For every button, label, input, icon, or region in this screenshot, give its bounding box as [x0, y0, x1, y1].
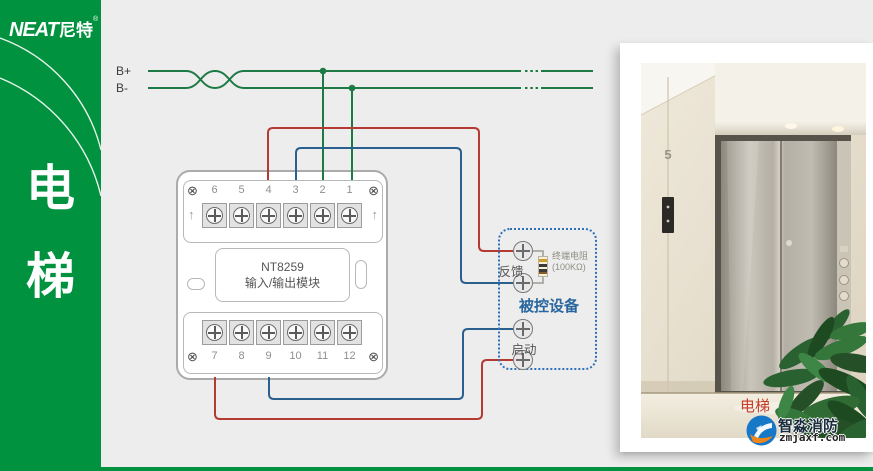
start-label: 启动	[509, 339, 539, 358]
start-terminal-positive	[513, 319, 533, 339]
terminal-number: 2	[310, 184, 335, 196]
terminal-screw	[310, 203, 335, 228]
terminal-screw	[202, 320, 227, 345]
mounting-screw-icon: ⊗	[187, 350, 198, 363]
mounting-screw-icon: ⊗	[368, 184, 379, 197]
terminal-numbers-top: 6 5 4 3 2 1	[202, 184, 362, 196]
terminal-number: 12	[337, 350, 362, 362]
bus-line-bminus	[148, 71, 521, 88]
terminal-numbers-bottom: 7 8 9 10 11 12	[202, 350, 362, 362]
arrow-up-icon: ↑	[188, 208, 195, 221]
terminal-screw	[229, 203, 254, 228]
module-terminal-strip-top: ⊗ 6 5 4 3 2 1 ⊗ ↑ ↑	[183, 180, 383, 243]
terminal-number: 6	[202, 184, 227, 196]
watermark-site: zmjaxf.com	[779, 431, 845, 444]
terminal-resistor-note: 终端电阻 (100KΩ)	[552, 251, 588, 273]
terminal-screw	[283, 320, 308, 345]
controlled-device-title: 被控设备	[505, 295, 593, 316]
terminal-number: 9	[256, 350, 281, 362]
terminal-number: 7	[202, 350, 227, 362]
photo-caption: 电梯	[740, 395, 770, 416]
terminal-number: 4	[256, 184, 281, 196]
module-slot	[355, 260, 367, 289]
terminal-number: 11	[310, 350, 335, 362]
terminal-number: 5	[229, 184, 254, 196]
module-name-plate: NT8259 输入/输出模块	[215, 248, 350, 302]
terminal-screw	[256, 320, 281, 345]
terminal-resistor-value: (100KΩ)	[552, 262, 588, 273]
bus-label-bminus: B-	[116, 81, 128, 95]
bus-label-bplus: B+	[116, 64, 131, 78]
feedback-terminal-positive	[513, 241, 533, 261]
terminal-number: 8	[229, 350, 254, 362]
watermark-logo-icon	[746, 415, 777, 446]
module-terminal-strip-bottom: ⊗ 7 8 9 10 11 12 ⊗	[183, 312, 383, 374]
feedback-label: 反馈	[496, 261, 526, 280]
terminal-number: 10	[283, 350, 308, 362]
terminal-screws-bottom	[202, 320, 362, 345]
terminal-screw	[256, 203, 281, 228]
mounting-screw-icon: ⊗	[368, 350, 379, 363]
page: 5	[0, 0, 873, 471]
terminal-screw	[310, 320, 335, 345]
terminal-screw	[202, 203, 227, 228]
terminal-screw	[229, 320, 254, 345]
arrow-up-icon: ↑	[372, 208, 379, 221]
terminal-resistor	[538, 256, 548, 277]
terminal-screw	[337, 203, 362, 228]
terminal-screw	[337, 320, 362, 345]
terminal-screw	[283, 203, 308, 228]
module-model: NT8259	[261, 259, 304, 275]
bus-line-bplus	[148, 71, 521, 88]
terminal-screws-top	[202, 203, 362, 228]
mounting-screw-icon: ⊗	[187, 184, 198, 197]
terminal-number: 1	[337, 184, 362, 196]
module-type: 输入/输出模块	[245, 275, 320, 291]
module-slot	[187, 278, 205, 290]
terminal-number: 3	[283, 184, 308, 196]
terminal-resistor-label: 终端电阻	[552, 251, 588, 262]
